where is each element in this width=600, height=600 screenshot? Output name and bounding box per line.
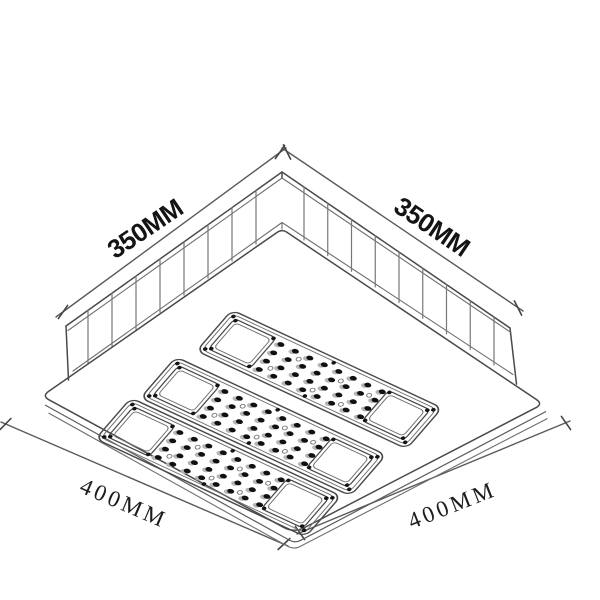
dim-line-bottom-left bbox=[1, 422, 288, 546]
lens-hole bbox=[310, 440, 317, 445]
screw-dot bbox=[190, 411, 197, 416]
lens-hole bbox=[236, 466, 243, 471]
module-bracket-inner bbox=[158, 370, 215, 411]
dim-line-top-right bbox=[282, 148, 523, 311]
screw-dot bbox=[274, 407, 281, 412]
screw-dot bbox=[329, 495, 336, 500]
lens-hole bbox=[211, 413, 218, 418]
screw-dot bbox=[323, 496, 330, 501]
lens-hole bbox=[194, 445, 201, 450]
module-bracket-inner bbox=[214, 323, 271, 364]
panel-thickness-line-2 bbox=[49, 413, 548, 548]
screw-dot bbox=[400, 436, 407, 441]
screw-dot bbox=[402, 440, 409, 445]
lens-hole bbox=[309, 387, 316, 392]
panel-outline bbox=[45, 231, 539, 531]
screw-dot bbox=[176, 365, 183, 370]
lens-hole bbox=[236, 490, 243, 495]
body-end-cap-left bbox=[66, 326, 69, 380]
lens-hole bbox=[166, 454, 173, 459]
screw-dot bbox=[374, 454, 381, 459]
screw-dot bbox=[344, 483, 351, 488]
screw-dot bbox=[208, 346, 215, 351]
lens-hole bbox=[337, 378, 344, 383]
screw-dot bbox=[129, 402, 136, 407]
lens-hole bbox=[337, 402, 344, 407]
lens-hole bbox=[265, 481, 272, 486]
body-bottom-edge-right bbox=[282, 223, 513, 375]
screw-dot bbox=[214, 383, 221, 388]
screw-dot bbox=[330, 360, 337, 365]
lens-hole bbox=[267, 366, 274, 371]
screw-dot bbox=[386, 390, 393, 395]
lens-hole bbox=[281, 449, 288, 454]
module-frame-inner bbox=[202, 314, 436, 445]
lens-hole bbox=[239, 404, 246, 409]
body-top-edge-left bbox=[66, 172, 282, 326]
dimension-label-bottom-left: 400MM bbox=[76, 473, 171, 533]
technical-drawing-page: 350MM 350MM 400MM 400MM bbox=[0, 0, 600, 600]
screw-dot bbox=[424, 408, 431, 413]
screw-dot bbox=[270, 336, 277, 341]
screw-dot bbox=[230, 314, 237, 319]
screw-dot bbox=[346, 487, 353, 492]
screw-dot bbox=[152, 393, 159, 398]
module-bracket-inner bbox=[113, 411, 170, 452]
dimension-label-top-right: 350MM bbox=[389, 191, 476, 263]
lens-hole bbox=[208, 475, 215, 480]
lens-hole bbox=[281, 425, 288, 430]
screw-dot bbox=[246, 441, 253, 446]
body-top-edge-right-inner bbox=[282, 178, 511, 333]
screw-dot bbox=[330, 437, 337, 442]
screw-dot bbox=[229, 448, 236, 453]
screw-dot bbox=[169, 424, 176, 429]
screw-dot bbox=[131, 406, 138, 411]
screw-dot bbox=[285, 478, 292, 483]
canopy-light-diagram: 350MM 350MM 400MM 400MM bbox=[0, 0, 600, 600]
dim-line-top-left bbox=[56, 148, 286, 317]
screw-dot bbox=[302, 394, 309, 399]
screw-dot bbox=[368, 455, 375, 460]
screw-dot bbox=[146, 394, 153, 399]
screw-dot bbox=[174, 361, 181, 366]
lens-hole bbox=[295, 357, 302, 362]
screw-dot bbox=[430, 407, 437, 412]
screw-dot bbox=[246, 364, 253, 369]
screw-dot bbox=[202, 347, 209, 352]
screw-dot bbox=[232, 318, 239, 323]
body-end-cap-right bbox=[510, 328, 517, 384]
lens-hole bbox=[253, 434, 260, 439]
lens-hole bbox=[366, 393, 373, 398]
